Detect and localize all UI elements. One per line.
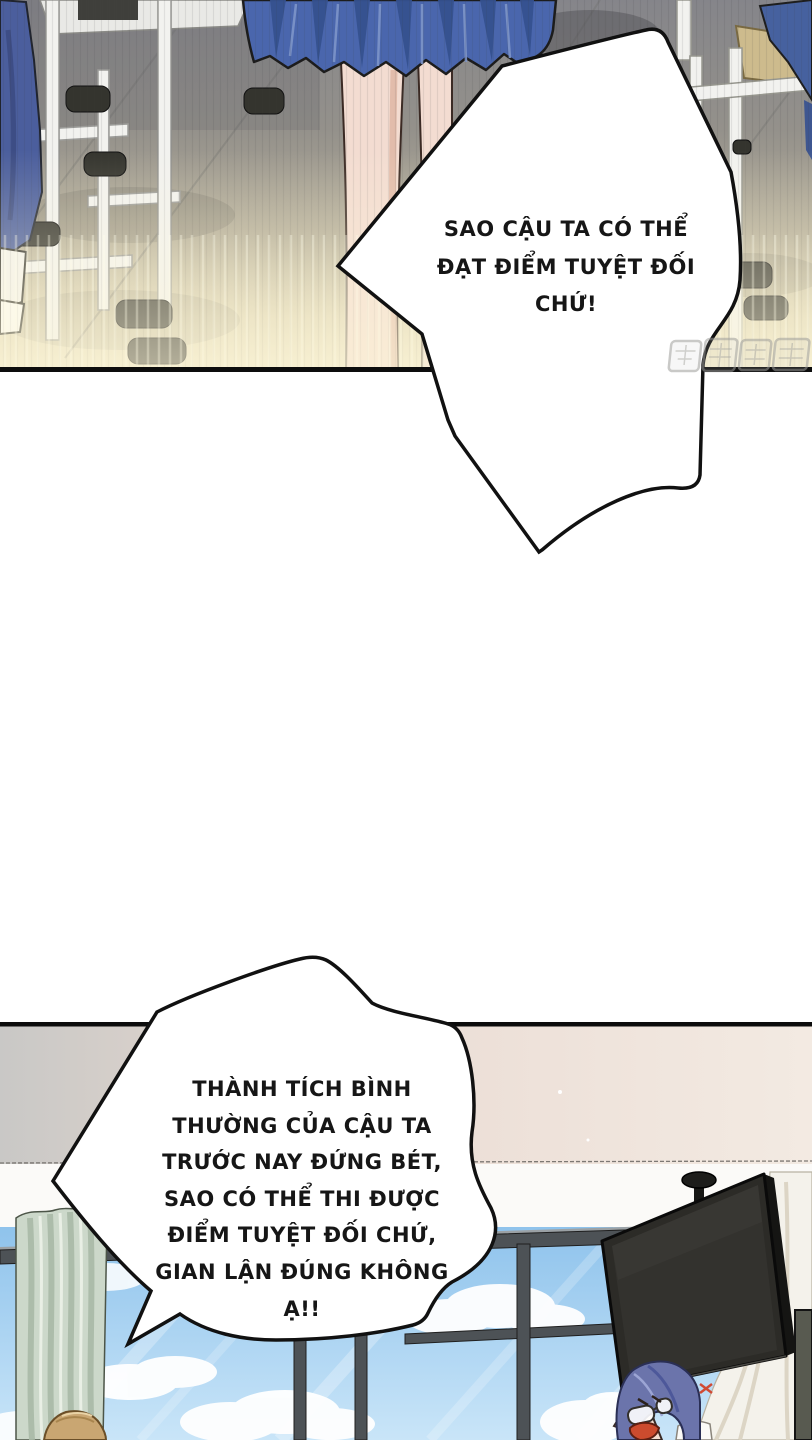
floor-glow [0,150,812,372]
panel-bottom-artwork [0,1022,812,1440]
comic-page: SAO CẬU TA CÓ THỂ ĐẠT ĐIỂM TUYỆT ĐỐI CHỨ… [0,0,812,1440]
tv-mount-knob [682,1172,716,1188]
frame-mullion [355,1250,367,1440]
panel-top-border [0,367,812,372]
panel-top-artwork [0,0,812,372]
wall-upper [0,1022,812,1164]
sparkle [558,1090,562,1094]
curtain-green-left [16,1208,107,1440]
panel-bottom-classroom-window [0,1022,812,1440]
door-frame-right [795,1310,812,1440]
panel-top-classroom-floor [0,0,812,372]
frame-mullion [517,1244,530,1440]
sparkle [587,1139,590,1142]
panel-bottom-border [0,1022,812,1027]
frame-mullion [294,1252,306,1440]
